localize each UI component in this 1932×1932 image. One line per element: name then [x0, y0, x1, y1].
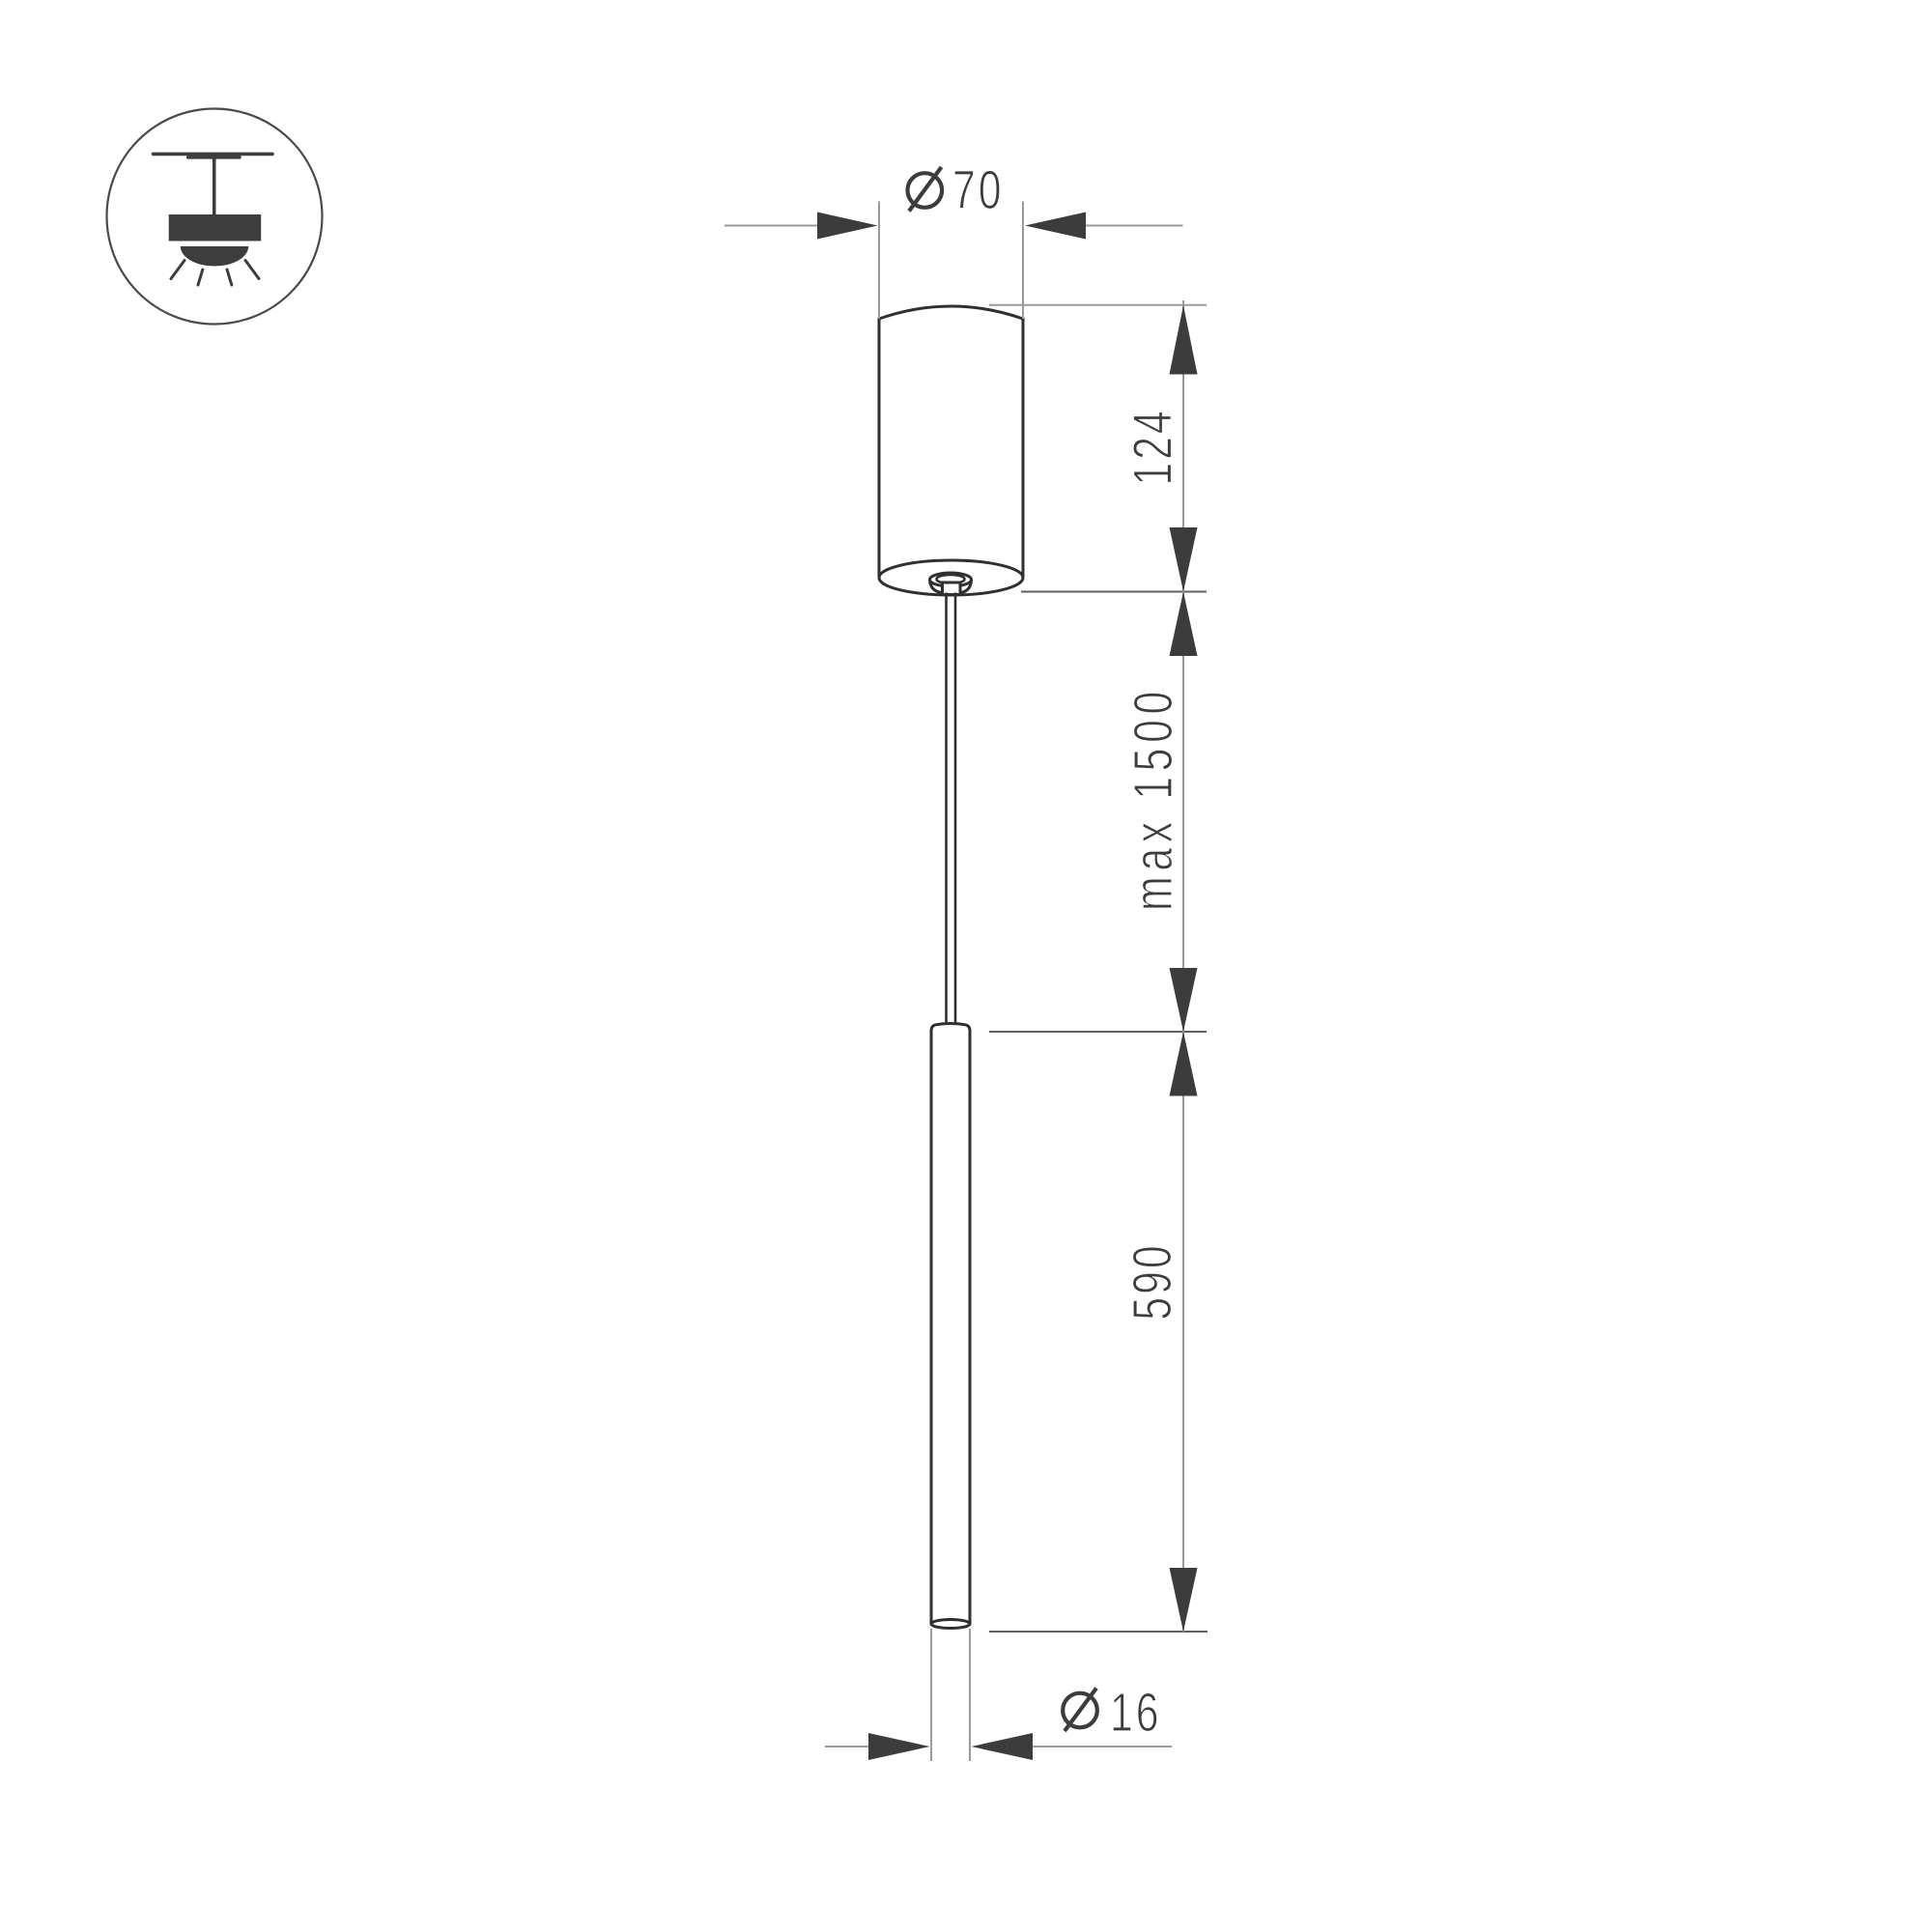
svg-text:70: 70 — [952, 158, 1005, 220]
svg-text:590: 590 — [1121, 1242, 1182, 1320]
svg-text:max 1500: max 1500 — [1122, 686, 1183, 911]
svg-text:124: 124 — [1121, 408, 1182, 485]
svg-text:16: 16 — [1110, 1681, 1162, 1743]
